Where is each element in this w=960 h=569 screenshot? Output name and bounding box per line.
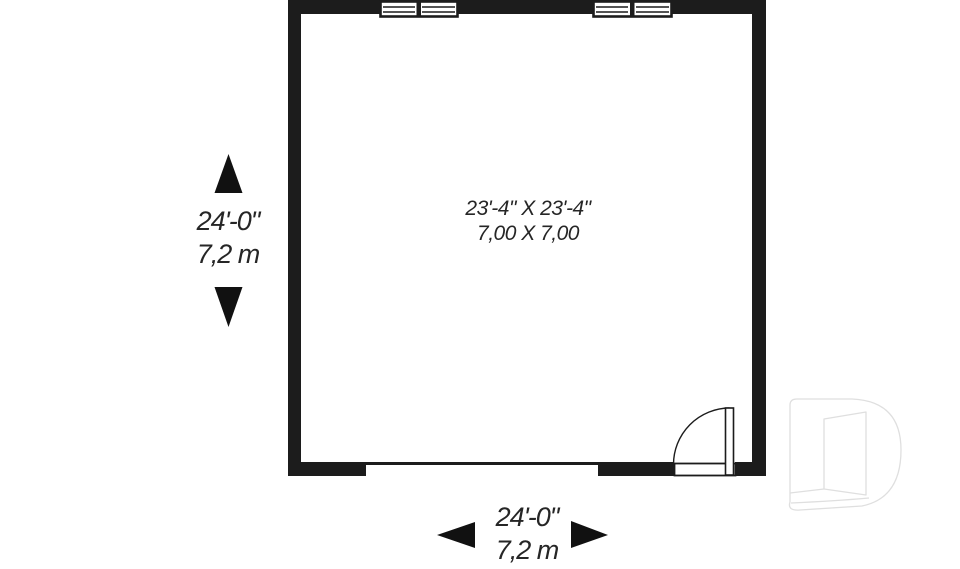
dimension-arrow-down-icon: [215, 287, 243, 327]
horizontal-dimension-label: 24'-0" 7,2 m: [457, 501, 597, 567]
window-left: [381, 2, 458, 17]
entry-door: [674, 408, 736, 476]
window-mullion: [417, 2, 422, 17]
wall-right: [752, 0, 766, 476]
window-mullion: [630, 2, 635, 17]
room-size-imperial: 23'-4" X 23'-4": [398, 196, 658, 221]
door-swing-arc: [674, 408, 730, 465]
vertical-dimension-imperial: 24'-0": [158, 205, 298, 238]
wall-bottom-left-segment: [288, 462, 366, 476]
dimension-arrow-up-icon: [215, 154, 243, 193]
room-size-label: 23'-4" X 23'-4" 7,00 X 7,00: [398, 196, 658, 246]
horizontal-dimension-imperial: 24'-0": [457, 501, 597, 534]
window-right: [594, 2, 672, 17]
room-size-metric: 7,00 X 7,00: [398, 221, 658, 246]
wall-top: [288, 0, 766, 14]
floor-plan-drawing: [0, 0, 960, 569]
drummond-d-logo-icon: [789, 399, 901, 510]
wall-bottom-right-segment: [735, 462, 766, 476]
floor-plan-canvas: 23'-4" X 23'-4" 7,00 X 7,00 24'-0" 7,2 m…: [0, 0, 960, 569]
door-leaf: [726, 408, 734, 475]
vertical-dimension-metric: 7,2 m: [158, 238, 298, 271]
wall-bottom-middle-segment: [598, 462, 674, 476]
horizontal-dimension-metric: 7,2 m: [457, 534, 597, 567]
vertical-dimension-label: 24'-0" 7,2 m: [158, 205, 298, 271]
garage-opening-line: [366, 462, 598, 465]
